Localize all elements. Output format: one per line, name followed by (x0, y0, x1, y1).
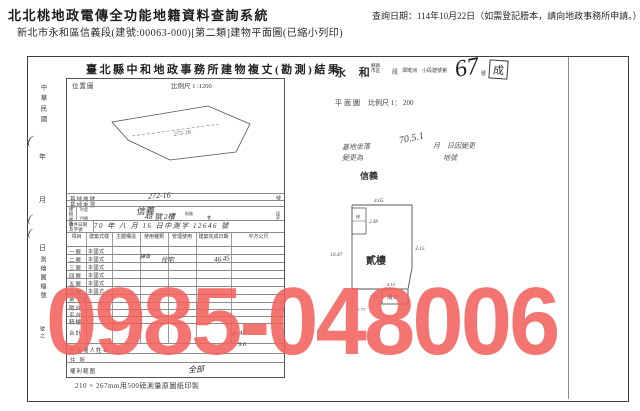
ann-section-stamp: 信義 (360, 169, 378, 183)
watermark-phone: 0985-048006 (46, 274, 558, 370)
col-structure: 主體構造 (112, 235, 140, 241)
village-label: 村里 (80, 207, 88, 213)
ann-line2b: 地號 (443, 153, 457, 163)
location-sketch: 272-16 (70, 94, 282, 192)
approval-stamp: 成 (488, 59, 508, 79)
margin-month: 月 (39, 195, 46, 205)
col-complete-date: 建築完成日期 (196, 235, 231, 241)
hand-structure: 磚造 (140, 253, 150, 261)
plan-stair-label: 梯 (356, 213, 360, 219)
sketch-parcel-note: 272-16 (173, 130, 191, 138)
hand-area-2f: 46.45 (214, 254, 230, 264)
hand-receipt-value: 70 年 八 月 16 日中測字 12646 號 (94, 221, 230, 231)
ann-line1c: 月 日因變更 (433, 141, 475, 151)
plan-section-suffix: 段 (392, 67, 398, 76)
margin-era: 中華民國 (37, 84, 47, 126)
scan-right-divider (568, 57, 569, 399)
plan-floor-label: 貳樓 (366, 254, 386, 267)
col-use-type: 使用種類 (140, 235, 168, 241)
margin-sheet-no: 號之 (38, 326, 45, 340)
dim-left: 10.47 (330, 251, 343, 258)
system-title: 北北桃地政電傳全功能地籍資料查詢系統 (8, 5, 269, 24)
col-manage-use: 管理使用 (168, 235, 196, 241)
hand-use: 住宅 (161, 254, 174, 264)
plan-scale: 比例尺 1： 200 (368, 98, 414, 108)
query-date-note: 查詢日期：114年10月22日（如需登記謄本，請向地政事務所申請。） (372, 9, 640, 22)
dim-stair: 2.48 (369, 220, 378, 225)
margin-year: 年 (39, 152, 46, 162)
street-label: 街路 (185, 211, 193, 217)
col-style: 建築式樣 (86, 235, 112, 241)
col-item: 項目 (67, 235, 86, 241)
hand-land-no: 272-16 (148, 190, 171, 200)
plan-town-unit: 鄉鎮市區 (371, 63, 381, 74)
location-map-scale: 比例尺 1 :1200 (171, 80, 212, 90)
paper-note: 210 × 267mm用500磅測量原圖紙印製 (75, 381, 199, 391)
margin-day: 日 (39, 243, 46, 253)
location-map-label: 位置圖 (72, 80, 95, 90)
col-area: 平方公尺 (231, 235, 286, 241)
form-title: 臺北縣中和地政事務所建物複丈(勘測)結果 (86, 61, 341, 77)
document-subtitle: 新北市永和區信義段(建號:00063-000)[第二類]建物平面圖(已縮小列印) (17, 24, 343, 39)
ann-line1a: 基地坐落 (342, 142, 370, 153)
plan-label: 平面圖 (335, 98, 362, 108)
dim-top: 4.65 (374, 197, 384, 204)
plan-town: 永 和 (335, 64, 375, 80)
plan-subsection-suffix: 小段建號第 (422, 67, 447, 74)
ann-line2a: 變更為 (342, 153, 363, 163)
hand-building-no: 67 (453, 53, 481, 84)
query-system-printout: 北北桃地政電傳全功能地籍資料查詢系統 查詢日期：114年10月22日（如需登記謄… (0, 0, 640, 411)
plan-subsection: 潭墘洲 (402, 67, 417, 74)
plan-no-suffix: 號 (481, 70, 486, 77)
dim-right: 3.15 (414, 246, 425, 252)
